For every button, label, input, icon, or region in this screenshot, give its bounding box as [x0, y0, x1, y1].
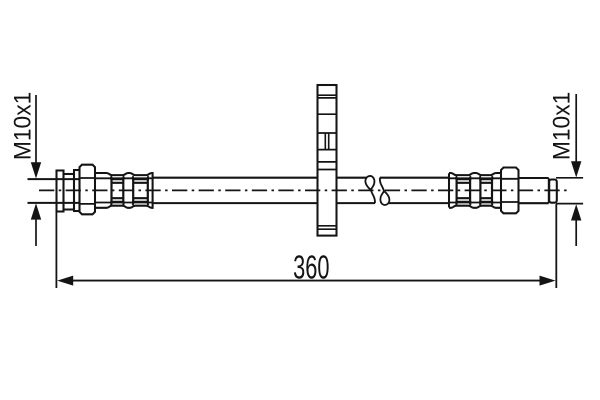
svg-text:360: 360 [293, 249, 329, 286]
svg-text:M10x1: M10x1 [10, 92, 37, 160]
svg-text:M10x1: M10x1 [549, 92, 576, 160]
